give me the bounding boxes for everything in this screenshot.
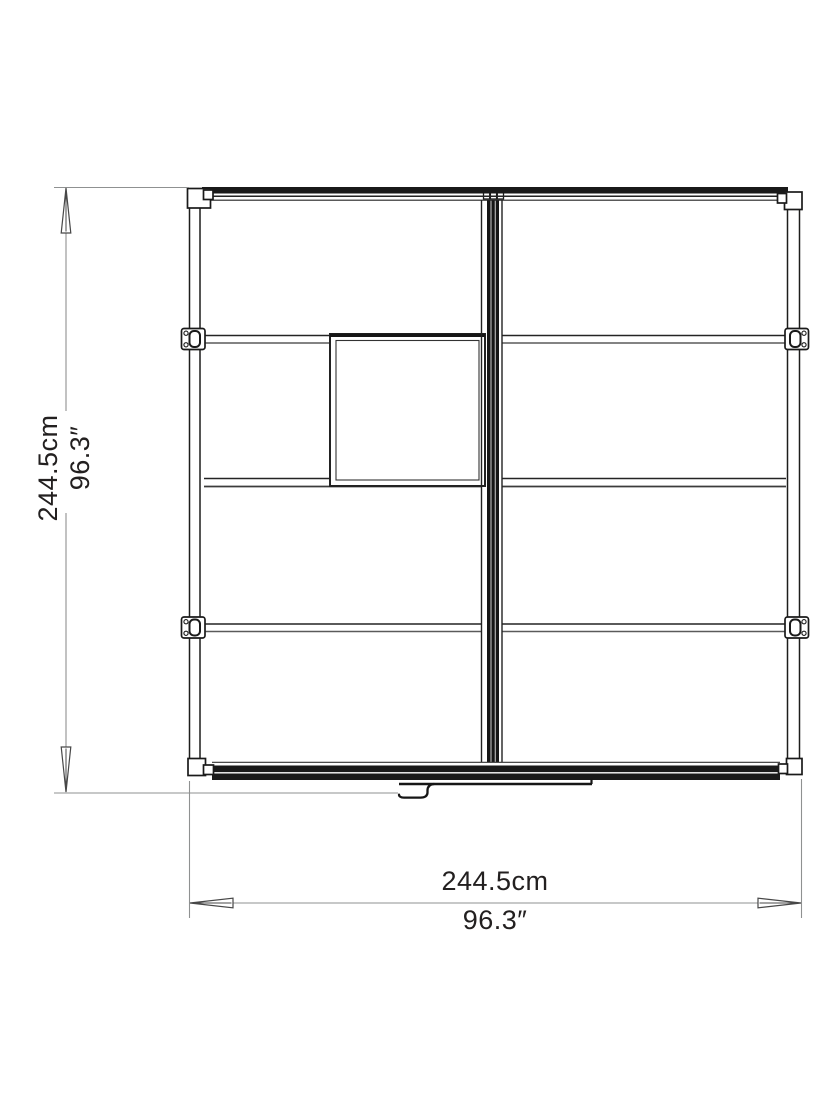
side-clamp-left-upper [182,329,206,350]
side-clamp-right-lower [785,617,809,638]
width-label-cm: 244.5cm [441,866,548,896]
floorplan-diagram: 244.5cm 96.3″ 244.5cm 96.3″ [0,0,840,1120]
floorplan-page: 244.5cm 96.3″ 244.5cm 96.3″ [0,0,840,1120]
side-clamp-right-upper [785,329,809,350]
width-label-inches: 96.3″ [463,905,528,935]
corner-bracket-top-left [188,189,214,209]
skylight-vent [330,334,485,486]
height-label-inches: 96.3″ [65,426,95,491]
side-clamp-left-lower [182,617,206,638]
height-label-cm: 244.5cm [33,414,63,521]
diagram-background [0,0,840,1120]
